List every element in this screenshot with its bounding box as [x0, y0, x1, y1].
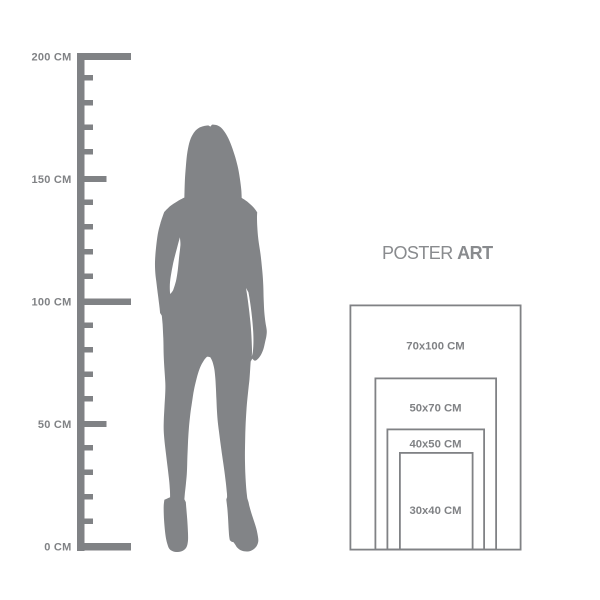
svg-text:40x50 CM: 40x50 CM	[409, 439, 461, 451]
svg-text:0 CM: 0 CM	[44, 542, 71, 554]
svg-text:150 CM: 150 CM	[31, 174, 71, 186]
svg-text:POSTER ART: POSTER ART	[382, 243, 493, 263]
svg-text:50 CM: 50 CM	[38, 419, 72, 431]
svg-text:50x70 CM: 50x70 CM	[409, 403, 461, 415]
svg-text:30x40 CM: 30x40 CM	[409, 505, 461, 517]
svg-text:70x100 CM: 70x100 CM	[406, 341, 464, 353]
svg-text:100 CM: 100 CM	[31, 297, 71, 309]
svg-text:200 CM: 200 CM	[31, 52, 71, 64]
